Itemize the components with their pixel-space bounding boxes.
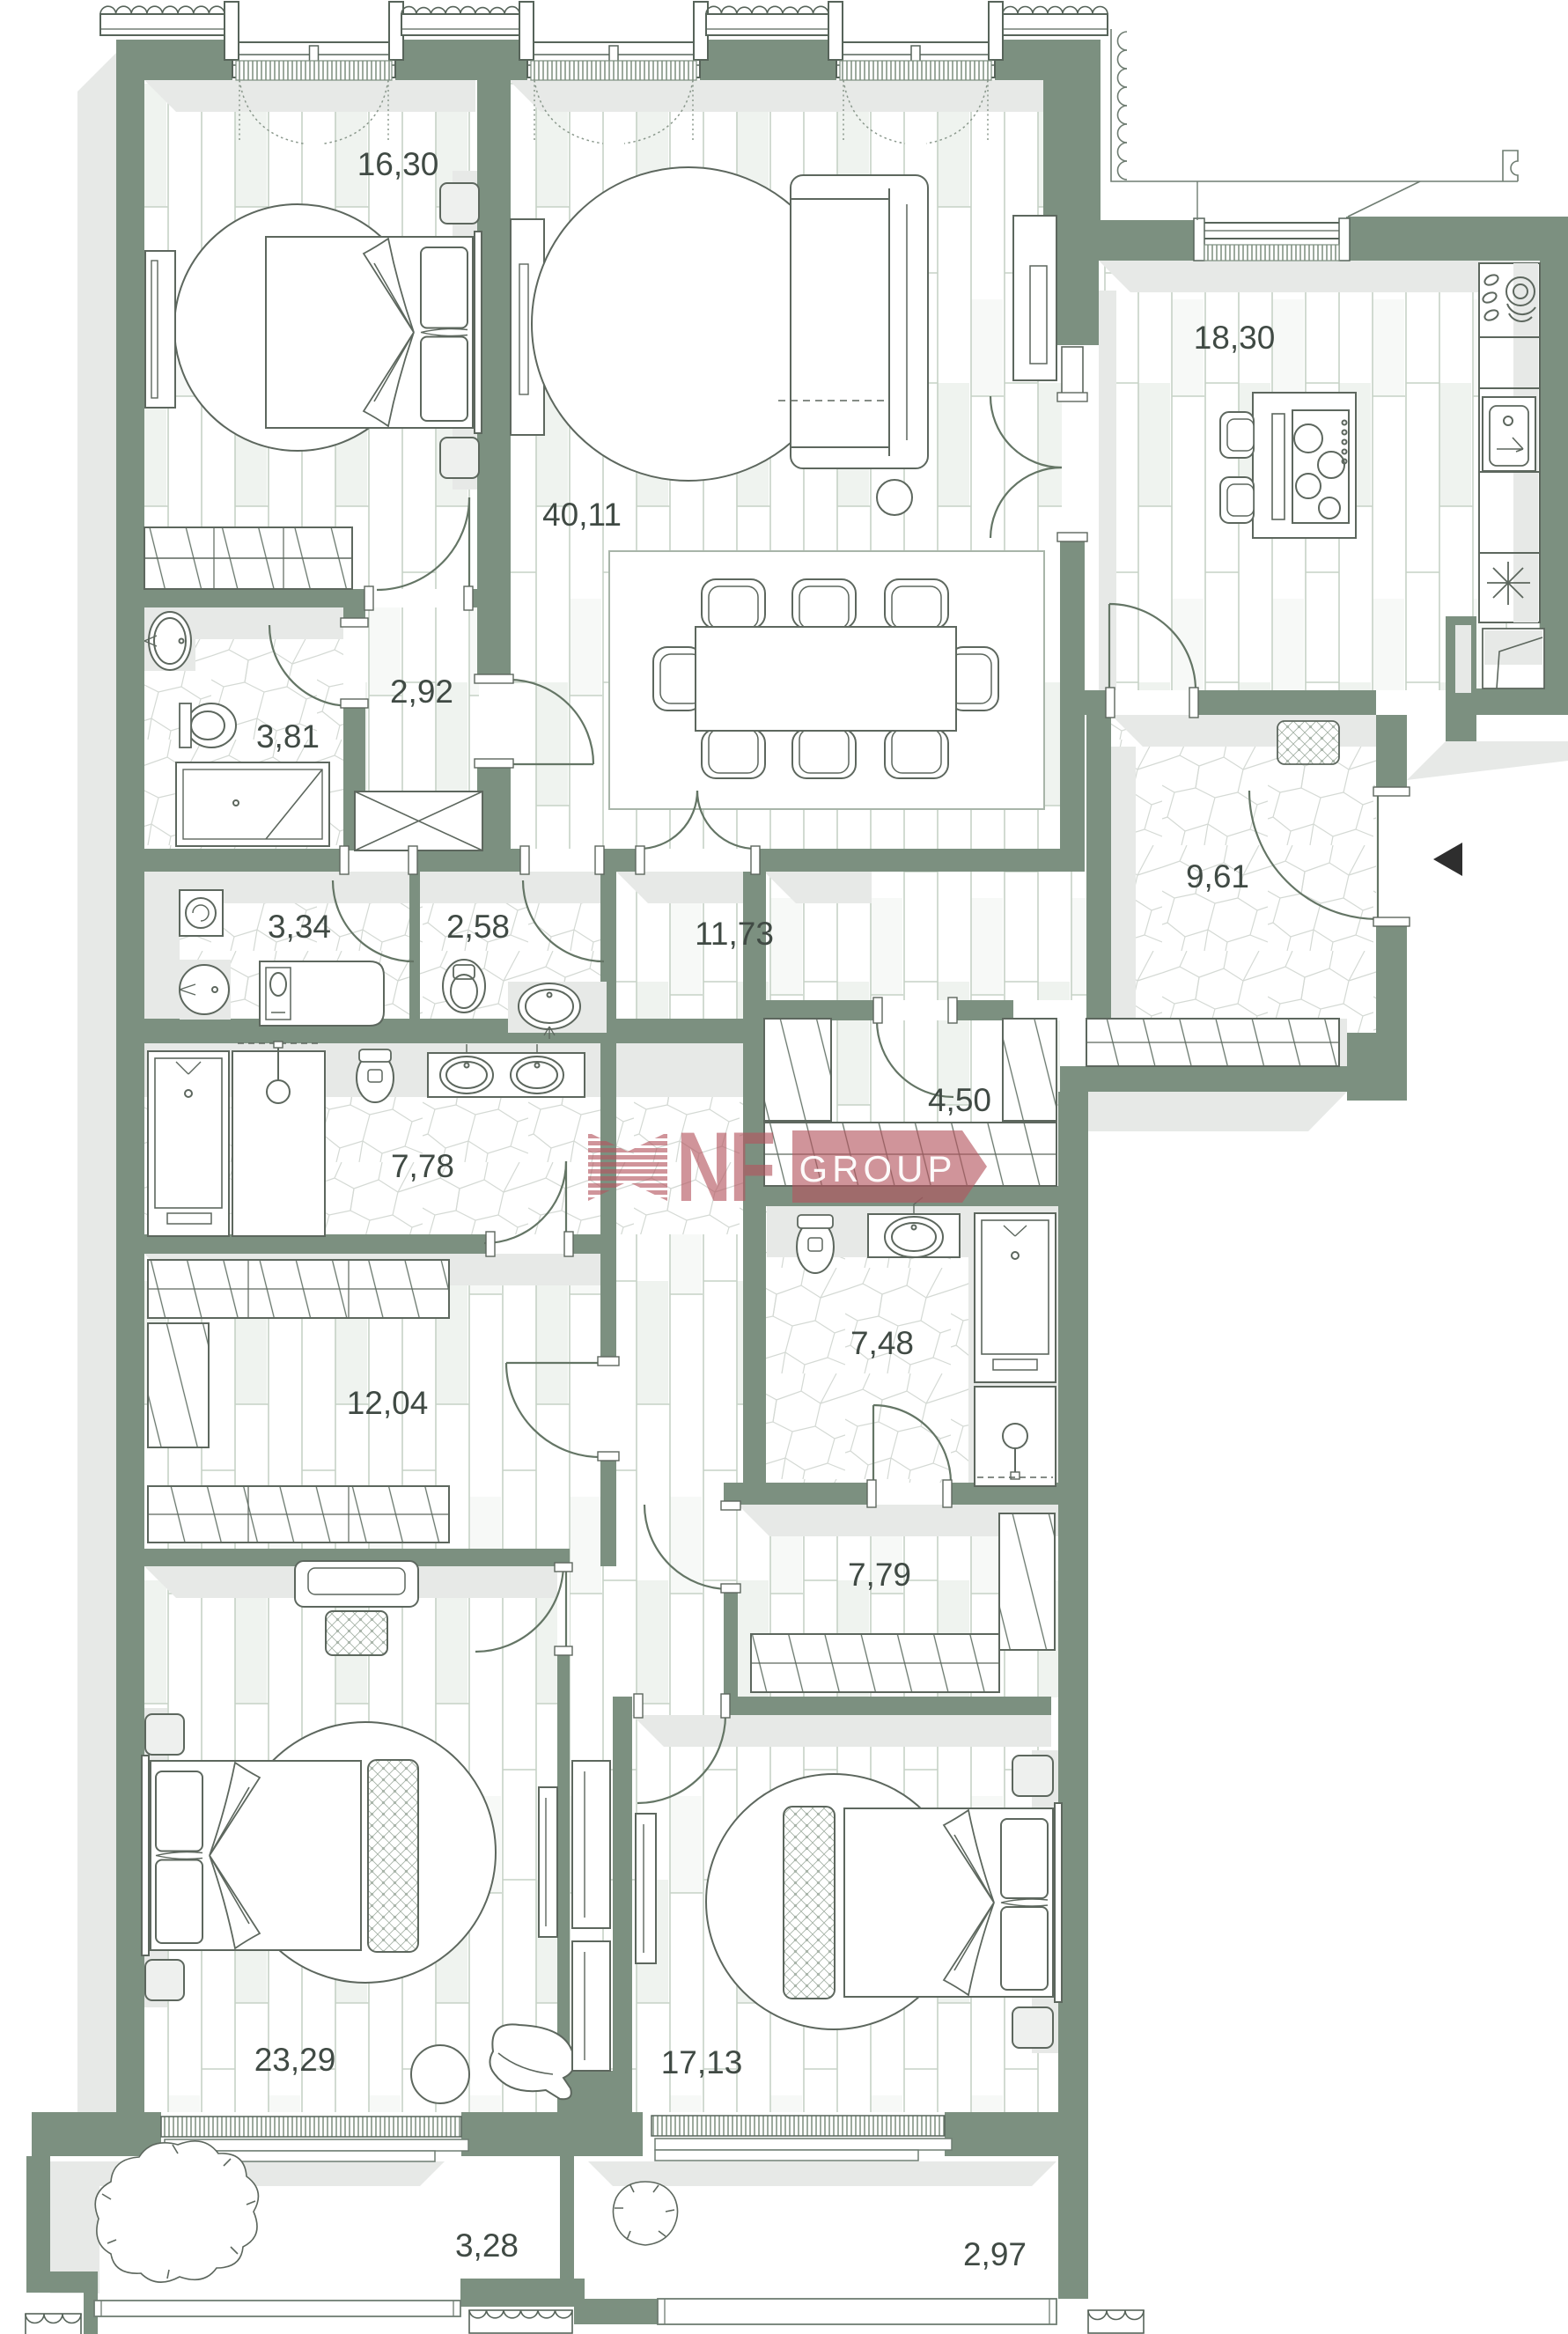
svg-text:11,73: 11,73 [695, 916, 774, 952]
svg-text:NF: NF [676, 1113, 773, 1223]
svg-text:7,78: 7,78 [391, 1148, 454, 1184]
svg-text:3,28: 3,28 [455, 2227, 519, 2264]
svg-text:3,81: 3,81 [256, 718, 320, 755]
svg-text:9,61: 9,61 [1186, 858, 1249, 895]
svg-text:12,04: 12,04 [347, 1385, 429, 1421]
svg-text:3,34: 3,34 [268, 909, 331, 945]
svg-text:2,97: 2,97 [963, 2236, 1027, 2272]
svg-text:23,29: 23,29 [254, 2042, 336, 2078]
svg-text:2,92: 2,92 [390, 674, 453, 710]
svg-text:2,58: 2,58 [446, 909, 510, 945]
svg-text:18,30: 18,30 [1194, 320, 1276, 356]
svg-text:16,30: 16,30 [357, 146, 439, 182]
svg-text:4,50: 4,50 [928, 1082, 991, 1118]
svg-text:7,48: 7,48 [850, 1325, 914, 1361]
svg-text:40,11: 40,11 [542, 497, 622, 533]
svg-text:17,13: 17,13 [661, 2044, 743, 2080]
svg-text:7,79: 7,79 [848, 1557, 911, 1593]
svg-text:GROUP: GROUP [799, 1148, 956, 1189]
